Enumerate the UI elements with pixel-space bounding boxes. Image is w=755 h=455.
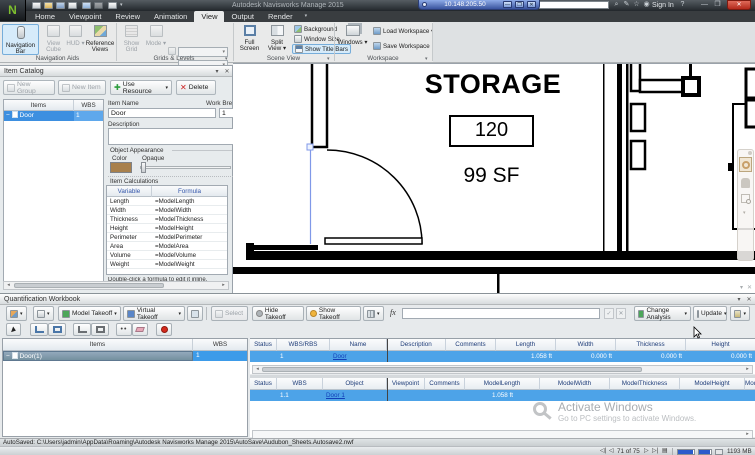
reference-views-icon	[94, 25, 107, 37]
col-comments[interactable]: Comments	[446, 339, 496, 351]
view-cube-icon	[47, 25, 60, 37]
delete-icon: ✕	[180, 83, 187, 92]
reference-views-button[interactable]: Reference Views	[85, 24, 115, 55]
show-takeoff-icon	[310, 310, 317, 317]
grid-mode-label: Mode	[146, 40, 161, 47]
column-options-icon	[367, 310, 375, 318]
print-icon[interactable]	[68, 2, 77, 9]
tab-viewpoint[interactable]: Viewpoint	[62, 11, 108, 22]
calc-row[interactable]: Weight=ModelWeight	[107, 260, 227, 269]
scene-view[interactable]: STORAGE 120 99 SF ▾ ▾ ✕	[233, 63, 755, 293]
variable-column[interactable]: Variable	[107, 186, 152, 197]
eraser-button[interactable]	[132, 323, 148, 336]
select-icon	[215, 310, 223, 318]
group-label-scene-view: Scene View	[234, 55, 333, 63]
col-height[interactable]: Height	[686, 339, 755, 351]
rectangle-markup-button[interactable]	[48, 323, 66, 336]
view-options-button[interactable]: ▾	[33, 306, 54, 321]
scroll-left-icon[interactable]: ◂	[4, 282, 13, 289]
open-file-icon[interactable]	[44, 2, 53, 9]
window-size-icon	[294, 35, 302, 43]
wall-lower-2	[233, 267, 755, 274]
panel-dock-icon[interactable]: ▾	[213, 68, 221, 76]
tree-collapse-icon[interactable]: −	[6, 353, 10, 360]
cell-modellength: 1.058 ft	[465, 390, 513, 401]
first-sheet-icon[interactable]: ◁|	[600, 448, 606, 455]
workbook-row-item: Door(1)	[20, 353, 42, 360]
column-options-button[interactable]: ▾	[363, 306, 384, 321]
mouse-cursor	[693, 326, 702, 339]
calc-row[interactable]: Width=ModelWidth	[107, 206, 227, 215]
hud-icon	[69, 25, 82, 37]
frozen-column-divider[interactable]	[387, 339, 388, 362]
catalog-wbs-column[interactable]: WBS	[74, 100, 103, 111]
polyline-markup-button[interactable]	[30, 323, 48, 336]
background-label: Background	[304, 26, 337, 33]
cell-object-link[interactable]: Door 1	[326, 390, 381, 401]
update-icon	[697, 310, 699, 318]
view-cube-button[interactable]: View Cube	[41, 24, 66, 55]
group-label-grids-levels: Grids & Levels	[117, 55, 231, 63]
cell-name-link[interactable]: Door	[333, 351, 383, 362]
export-icon	[734, 310, 741, 318]
workbook-dock-icon[interactable]: ▾	[735, 296, 743, 304]
group-label-workspace: Workspace	[335, 55, 431, 63]
full-screen-button[interactable]: Full Screen	[236, 24, 263, 55]
show-grid-icon	[125, 25, 138, 37]
quick-box-icon	[96, 326, 105, 333]
windows-key-icon	[533, 402, 555, 422]
color-label: Color	[112, 155, 127, 162]
object-appearance-label: Object Appearance	[110, 147, 164, 154]
infocenter-search-input[interactable]	[537, 1, 609, 9]
item-icon	[12, 111, 18, 118]
new-group-icon	[7, 84, 15, 92]
watermark-line1: Activate Windows	[558, 400, 753, 414]
col-modellength[interactable]: ModelLength	[465, 378, 540, 390]
takeoff-refresh-icon	[191, 310, 199, 318]
disk-progress-bar	[698, 449, 712, 455]
measure-points-button[interactable]: ••	[116, 323, 132, 336]
item-calculations-table: Variable Formula Length=ModelLength Widt…	[106, 185, 228, 275]
pointer-tool-button[interactable]	[6, 323, 21, 336]
rectangle-markup-icon	[53, 326, 62, 333]
memory-usage: 1193 MB	[727, 448, 752, 455]
room-number: 120	[475, 119, 508, 141]
formula-input[interactable]	[402, 308, 600, 319]
calc-row[interactable]: Length=ModelLength	[107, 197, 227, 206]
wall-lower-1	[246, 251, 755, 260]
item-catalog-title: Item Catalog	[0, 66, 232, 77]
fixture-box-1	[631, 104, 645, 131]
calc-row[interactable]: Height=ModelHeight	[107, 224, 227, 233]
group-label-navigation-aids: Navigation Aids	[0, 55, 115, 63]
export-button[interactable]: ▾	[730, 306, 750, 321]
tab-animation[interactable]: Animation	[147, 11, 194, 22]
col-modelwidth[interactable]: ModelWidth	[540, 378, 610, 390]
update-button[interactable]: Update▾	[693, 306, 727, 321]
catalog-row-item: Door	[20, 112, 34, 119]
col-modelperimeter[interactable]: ModelPerimeter	[745, 378, 755, 390]
favorites-star-icon[interactable]: ☆	[632, 1, 641, 9]
tab-view[interactable]: View	[194, 11, 224, 22]
workbook-row-wbs: 1	[193, 351, 247, 361]
communication-center-icon[interactable]: ✎	[622, 1, 631, 9]
sign-in-label[interactable]: Sign In	[652, 2, 674, 9]
autosave-status-bar: AutoSaved: C:\Users\jadmin\AppData\Roami…	[0, 438, 755, 446]
column-box	[683, 78, 699, 95]
panel-close-icon[interactable]: ✕	[223, 68, 231, 76]
hud-button[interactable]: HUD ▾	[66, 24, 85, 55]
item-grid-hscrollbar[interactable]: ◂ ▸	[252, 365, 753, 374]
catalog-hscrollbar[interactable]: ◂ ▸	[3, 281, 229, 290]
measure-points-icon: ••	[121, 326, 128, 333]
col-description[interactable]: Description	[387, 339, 446, 351]
workbook-title: Quantification Workbook	[0, 294, 755, 305]
user-icon[interactable]: ◉	[642, 1, 651, 9]
search-icon[interactable]: ⌕	[612, 1, 621, 9]
catalog-tree-row[interactable]: − Door 1	[4, 111, 103, 121]
edge-box-2	[746, 100, 755, 127]
view-options-icon	[37, 310, 45, 318]
scroll-right-icon[interactable]: ▸	[743, 431, 752, 438]
wall-thick-vertical-a	[617, 64, 622, 251]
door-swing-arc	[327, 150, 422, 244]
ribbon-tab-bar: Home Viewpoint Review Animation View Out…	[0, 11, 755, 22]
windows-label: Windows	[338, 39, 363, 46]
hinge-mark	[728, 163, 733, 171]
rdp-minimize-icon[interactable]: —	[503, 1, 512, 8]
col-wbs[interactable]: WBS	[277, 378, 323, 390]
load-workspace-label: Load Workspace	[383, 28, 429, 35]
delete-button[interactable]: ✕ Delete	[176, 80, 216, 95]
hide-takeoff-button[interactable]: Hide Takeoff	[252, 306, 304, 321]
background-icon	[294, 25, 302, 33]
record-icon	[161, 326, 168, 333]
scroll-left-icon[interactable]: ◂	[253, 366, 262, 373]
navigation-bar-icon	[17, 26, 25, 39]
virtual-takeoff-button[interactable]: Virtual Takeoff▾	[123, 306, 185, 321]
redo-icon[interactable]	[94, 2, 103, 9]
col-comments[interactable]: Comments	[425, 378, 465, 390]
previous-sheet-icon[interactable]: ◁	[609, 448, 614, 455]
opaque-label: Opaque	[142, 155, 164, 162]
frozen-column-divider[interactable]	[387, 378, 388, 401]
description-label: Description	[108, 121, 140, 128]
activate-windows-watermark: Activate Windows Go to PC settings to ac…	[558, 400, 753, 423]
pan-hand-icon[interactable]	[741, 178, 750, 188]
scene-dock-icon[interactable]: ▾	[740, 284, 743, 291]
item-icon	[12, 352, 18, 359]
window-close-icon[interactable]: ✕	[727, 0, 751, 10]
grid-settings-icon[interactable]	[168, 47, 176, 55]
cell-width: 0.000 ft	[556, 351, 612, 362]
formula-accept-icon[interactable]: ✓	[604, 308, 614, 319]
tab-review[interactable]: Review	[108, 11, 147, 22]
door-leaf	[325, 238, 422, 244]
rdp-restore-icon[interactable]: ❐	[515, 1, 524, 8]
workbook-tree-row[interactable]: − Door(1) 1	[3, 351, 247, 361]
cell-wbs: 1	[280, 351, 300, 362]
change-analysis-button[interactable]: Change Analysis▾	[634, 306, 691, 321]
ribbon: Navigation Bar View Cube HUD ▾ Reference…	[0, 22, 755, 63]
use-resource-icon: ✚	[114, 83, 121, 92]
show-grid-button[interactable]: Show Grid	[119, 24, 144, 55]
rdp-connection-bar: 10.148.205.50 — ❐ ✕	[418, 0, 540, 10]
new-group-button[interactable]: New Group	[3, 80, 55, 95]
autosave-path: AutoSaved: C:\Users\jadmin\AppData\Roami…	[3, 439, 354, 446]
calc-row[interactable]: Volume=ModelVolume	[107, 251, 227, 260]
pointer-tool-icon	[11, 326, 17, 333]
workbook-tree: Items WBS − Door(1) 1	[2, 338, 248, 437]
watermark-line2: Go to PC settings to activate Windows.	[558, 414, 753, 423]
col-width[interactable]: Width	[556, 339, 616, 351]
col-status[interactable]: Status	[250, 339, 277, 351]
wall-thin-vertical	[603, 64, 605, 251]
catalog-items-column[interactable]: Items	[4, 100, 74, 111]
quick-line-button[interactable]	[73, 323, 91, 336]
navbar-more-icon[interactable]: ▾	[743, 210, 746, 216]
workbook-wbs-column[interactable]: WBS	[193, 339, 247, 351]
wall-thick-vertical-b	[626, 64, 629, 251]
grid-mode-icon	[150, 25, 163, 37]
navisworks-window: Autodesk Navisworks Manage 2015 ▾ ⌕ ✎ ☆ …	[0, 0, 755, 455]
opaque-slider-track[interactable]	[140, 166, 231, 169]
change-analysis-icon	[638, 310, 644, 318]
application-menu-button[interactable]: N	[0, 0, 26, 21]
split-view-icon	[271, 25, 284, 36]
wall-tick	[497, 274, 500, 293]
col-name[interactable]: Name	[330, 339, 387, 351]
sheet-browser-icon[interactable]: ▤	[662, 448, 668, 455]
opaque-slider-handle[interactable]	[141, 162, 146, 173]
col-thickness[interactable]: Thickness	[616, 339, 686, 351]
calc-row[interactable]: Thickness=ModelThickness	[107, 215, 227, 224]
door-handle[interactable]	[307, 144, 313, 150]
room-name: STORAGE	[393, 69, 593, 100]
show-grid-label: Show Grid	[119, 41, 144, 54]
windows-button[interactable]: Windows ▾	[337, 24, 368, 55]
cell-height: 0.000 ft	[686, 351, 752, 362]
windows-icon	[346, 25, 360, 36]
hide-takeoff-icon	[256, 310, 263, 317]
item-grid-row[interactable]: 1 Door 1.058 ft 0.000 ft 0.000 ft 0.000 …	[250, 351, 755, 362]
save-workspace-icon	[373, 42, 381, 50]
calc-row[interactable]: Perimeter=ModelPerimeter	[107, 233, 227, 242]
fx-label: fx	[390, 308, 396, 317]
takeoff-navigator-icon	[10, 310, 18, 318]
takeoff-navigator-button[interactable]: ▾	[6, 306, 27, 321]
col-viewpoint[interactable]: Viewpoint	[387, 378, 425, 390]
navigation-bar-overlay: ▾	[737, 149, 754, 261]
catalog-tree: Items WBS − Door 1	[3, 99, 104, 285]
save-workspace-label: Save Workspace	[383, 43, 430, 50]
qat-dropdown-icon[interactable]: ▾	[120, 2, 126, 9]
cell-wbs: 1.1	[280, 390, 310, 401]
select-tool-icon[interactable]	[108, 2, 117, 9]
item-calculations-label: Item Calculations	[110, 178, 158, 185]
quantification-workbook-panel: Quantification Workbook ▾ ✕ ▾ ▾ Model Ta…	[0, 293, 755, 438]
show-takeoff-button[interactable]: Show Takeoff	[306, 306, 361, 321]
rdp-close-icon[interactable]: ✕	[527, 1, 536, 8]
calc-row[interactable]: Area=ModelArea	[107, 242, 227, 251]
item-catalog-panel: Item Catalog ▾ ✕ New Group New Item ✚ Us…	[0, 65, 233, 293]
sheet-position: 71 of 75	[617, 448, 640, 455]
ribbon-collapse-icon[interactable]: ▾	[305, 11, 308, 22]
full-screen-label: Full Screen	[236, 40, 263, 53]
reference-views-label: Reference Views	[85, 41, 115, 54]
model-takeoff-button[interactable]: Model Takeoff▾	[58, 306, 121, 321]
title-bar: Autodesk Navisworks Manage 2015 ▾ ⌕ ✎ ☆ …	[0, 0, 755, 11]
workbook-close-icon[interactable]: ✕	[745, 296, 753, 304]
new-item-icon	[62, 84, 70, 92]
model-takeoff-icon	[62, 310, 70, 318]
item-name-input[interactable]	[108, 108, 216, 118]
col-wbs-rbs[interactable]: WBS/RBS	[277, 339, 330, 351]
navbar-settings-icon[interactable]	[748, 151, 752, 155]
quick-box-button[interactable]	[91, 323, 109, 336]
room-number-tag: 120	[449, 115, 534, 147]
show-title-bars-icon	[295, 45, 303, 53]
catalog-row-wbs: 1	[74, 111, 103, 121]
tree-collapse-icon[interactable]: −	[6, 112, 10, 119]
background-button[interactable]: Background	[292, 24, 339, 34]
view-cube-label: View Cube	[41, 41, 66, 54]
record-button[interactable]	[156, 323, 172, 336]
col-length[interactable]: Length	[496, 339, 556, 351]
save-workspace-button[interactable]: Save Workspace	[371, 41, 432, 51]
wall-stub	[631, 64, 640, 91]
new-item-button[interactable]: New Item	[58, 80, 106, 95]
window-minimize-icon[interactable]: —	[700, 1, 709, 9]
rdp-address: 10.148.205.50	[430, 1, 500, 8]
pencil-progress-bar	[677, 449, 695, 455]
select-button[interactable]: Select	[211, 306, 248, 321]
fixture-box-2	[631, 141, 645, 169]
zoom-window-icon[interactable]	[741, 194, 750, 203]
next-sheet-icon[interactable]: ▷	[644, 448, 649, 455]
load-workspace-button[interactable]: Load Workspace ▾	[371, 26, 436, 36]
room-area: 99 SF	[419, 164, 564, 188]
last-sheet-icon[interactable]: ▷|	[652, 448, 658, 455]
virtual-takeoff-icon	[127, 310, 135, 318]
grid-mode-button[interactable]: Mode ▾	[145, 24, 167, 55]
formula-column[interactable]: Formula	[152, 186, 227, 197]
rdp-pin-icon[interactable]	[422, 2, 427, 7]
workbook-items-column[interactable]: Items	[3, 339, 193, 351]
edge-box-1	[746, 69, 755, 98]
tab-render[interactable]: Render	[261, 11, 300, 22]
col-object[interactable]: Object	[323, 378, 387, 390]
formula-cancel-icon[interactable]: ✕	[616, 308, 626, 319]
takeoff-refresh-button[interactable]	[187, 306, 203, 321]
save-icon[interactable]	[56, 2, 65, 9]
help-icon[interactable]: ?	[678, 1, 687, 9]
use-resource-button[interactable]: ✚ Use Resource ▾	[110, 80, 172, 95]
description-input[interactable]	[108, 128, 235, 145]
work-breakdown-label: Work Breakdown	[206, 100, 232, 107]
window-title: Autodesk Navisworks Manage 2015	[232, 2, 344, 9]
load-workspace-icon	[373, 27, 381, 35]
window-restore-icon[interactable]: ❐	[713, 1, 722, 9]
tab-output[interactable]: Output	[224, 11, 261, 22]
split-view-button[interactable]: Split View ▾	[264, 24, 290, 55]
steering-wheel-icon[interactable]	[739, 157, 752, 172]
scroll-right-icon[interactable]: ▸	[219, 282, 228, 289]
color-swatch[interactable]	[110, 162, 132, 173]
door-jamb	[253, 245, 318, 250]
full-screen-icon	[244, 25, 256, 36]
status-bar: ◁| ◁ 71 of 75 ▷ ▷| ▤ 1193 MB	[0, 446, 755, 455]
web-progress-bar	[715, 449, 723, 455]
magnifier-icon	[746, 199, 751, 204]
polyline-markup-icon	[35, 326, 44, 333]
wall-upper	[312, 64, 327, 147]
column-line	[689, 64, 692, 79]
col-status[interactable]: Status	[250, 378, 277, 390]
scene-close-icon[interactable]: ✕	[747, 284, 752, 291]
navigation-bar-button[interactable]: Navigation Bar	[2, 24, 39, 55]
undo-icon[interactable]	[82, 2, 91, 9]
hud-label: HUD	[66, 40, 79, 47]
col-modelheight[interactable]: ModelHeight	[680, 378, 745, 390]
eraser-icon	[135, 327, 145, 332]
col-modelthickness[interactable]: ModelThickness	[610, 378, 680, 390]
item-name-label: Item Name	[108, 100, 139, 107]
quick-line-icon	[78, 326, 87, 333]
cell-length: 1.058 ft	[496, 351, 552, 362]
new-file-icon[interactable]	[32, 2, 41, 9]
scroll-right-icon[interactable]: ▸	[743, 366, 752, 373]
tab-home[interactable]: Home	[28, 11, 62, 22]
cell-thickness: 0.000 ft	[616, 351, 682, 362]
split-view-label: Split View	[268, 39, 283, 53]
